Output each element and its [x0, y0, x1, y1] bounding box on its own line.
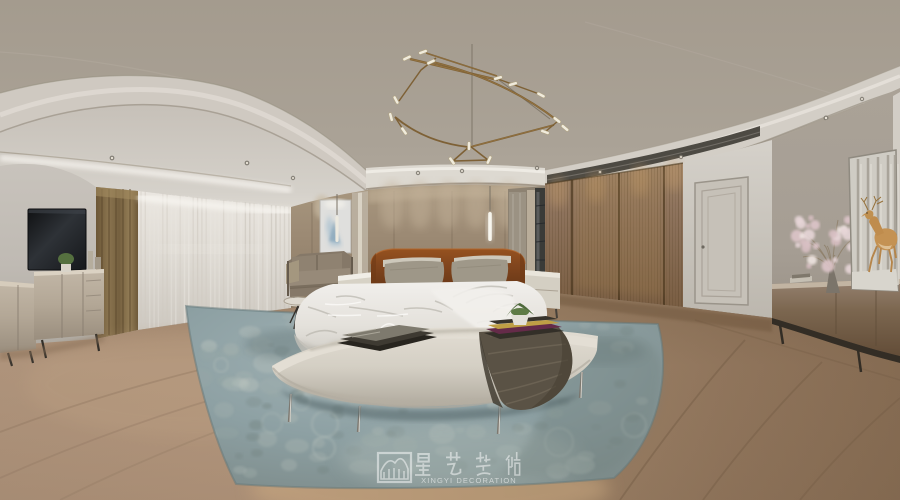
svg-text:XINGYI DECORATION: XINGYI DECORATION — [421, 476, 517, 485]
